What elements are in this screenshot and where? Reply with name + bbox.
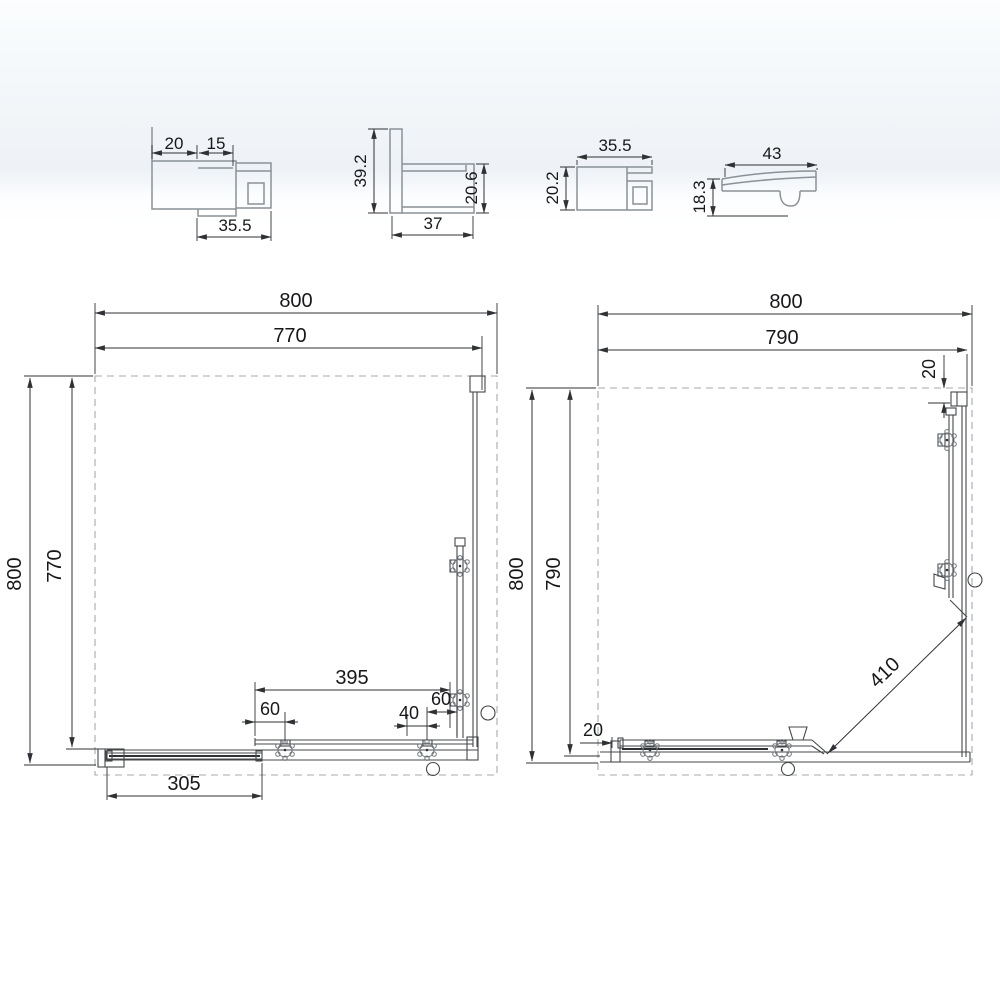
dim-planleft-width-800: 800 [279, 290, 312, 312]
dim-profile2-39-2: 39.2 [351, 154, 370, 187]
dim-planleft-395: 395 [335, 667, 368, 689]
dim-planright-diagonal-410: 410 [865, 653, 904, 692]
profile-section-2: 39.2 20.6 37 [351, 129, 489, 239]
profile-1-dimensions: 20 15 35.5 [152, 134, 271, 241]
dim-profile3-20-2: 20.2 [543, 171, 562, 204]
profile-section-1: 20 15 35.5 [152, 127, 271, 241]
dim-planright-height-790: 790 [543, 557, 565, 590]
technical-drawing-canvas: 20 15 35.5 39.2 20.6 37 [0, 0, 1000, 1000]
dim-profile4-18-3: 18.3 [690, 180, 709, 213]
dim-profile1-35-5: 35.5 [218, 216, 251, 235]
dim-planleft-305: 305 [167, 773, 200, 795]
tray-outline-right [598, 388, 972, 775]
plan-view-left: 800 770 800 770 [4, 290, 497, 800]
plan-view-right: 800 790 20 800 790 [506, 291, 982, 776]
plan-left-bottom-dimensions: 395 60 40 60 305 [107, 667, 457, 800]
plan-right-side-dimensions: 800 790 [506, 388, 600, 763]
dim-planleft-40: 40 [399, 703, 419, 723]
dim-profile2-37: 37 [424, 214, 443, 233]
dim-planleft-width-770: 770 [273, 325, 306, 347]
profile-4-shape [722, 171, 816, 206]
knob-right-plan-side [968, 573, 982, 587]
plan-left-bottom-assembly [98, 737, 478, 776]
plan-left-top-dimensions: 800 770 [95, 290, 497, 390]
profile-section-3: 35.5 20.2 [543, 136, 652, 210]
plan-right-top-dimensions: 800 790 20 [598, 291, 972, 418]
dim-planright-width-800: 800 [769, 291, 802, 313]
plan-left-side-panel [450, 376, 495, 747]
dim-profile2-20-6: 20.6 [462, 171, 481, 204]
dim-profile4-43: 43 [763, 144, 782, 163]
plan-right-bottom-dimensions: 410 20 [580, 618, 966, 753]
profile-3-shape [577, 167, 652, 210]
knob-right-plan-bottom [782, 763, 795, 776]
profile-2-dimensions: 39.2 20.6 37 [351, 129, 489, 239]
knob-left-plan-bottom [427, 763, 440, 776]
dim-profile1-20: 20 [165, 134, 184, 153]
dim-planright-height-800: 800 [506, 557, 528, 590]
dim-planleft-60-left: 60 [260, 699, 280, 719]
knob-left-plan-side [481, 706, 495, 720]
door-handle-bottom [789, 727, 807, 740]
tray-outline-left [95, 376, 497, 775]
dim-planright-top-gap-20: 20 [919, 359, 939, 379]
dim-planleft-60-right: 60 [431, 689, 451, 709]
plan-right-side-panel [934, 392, 982, 757]
dim-planright-bottom-gap-20: 20 [583, 720, 603, 740]
dim-profile1-15: 15 [207, 134, 226, 153]
dim-planright-width-790: 790 [765, 327, 798, 349]
profile-4-dimensions: 43 18.3 [690, 144, 817, 216]
profile-section-4: 43 18.3 [690, 144, 817, 216]
dim-planleft-height-800: 800 [4, 557, 26, 590]
plan-left-side-dimensions: 800 770 [4, 376, 100, 765]
dim-planleft-height-770: 770 [44, 549, 66, 582]
dim-profile3-35-5: 35.5 [598, 136, 631, 155]
plan-right-bottom-assembly [600, 727, 970, 776]
